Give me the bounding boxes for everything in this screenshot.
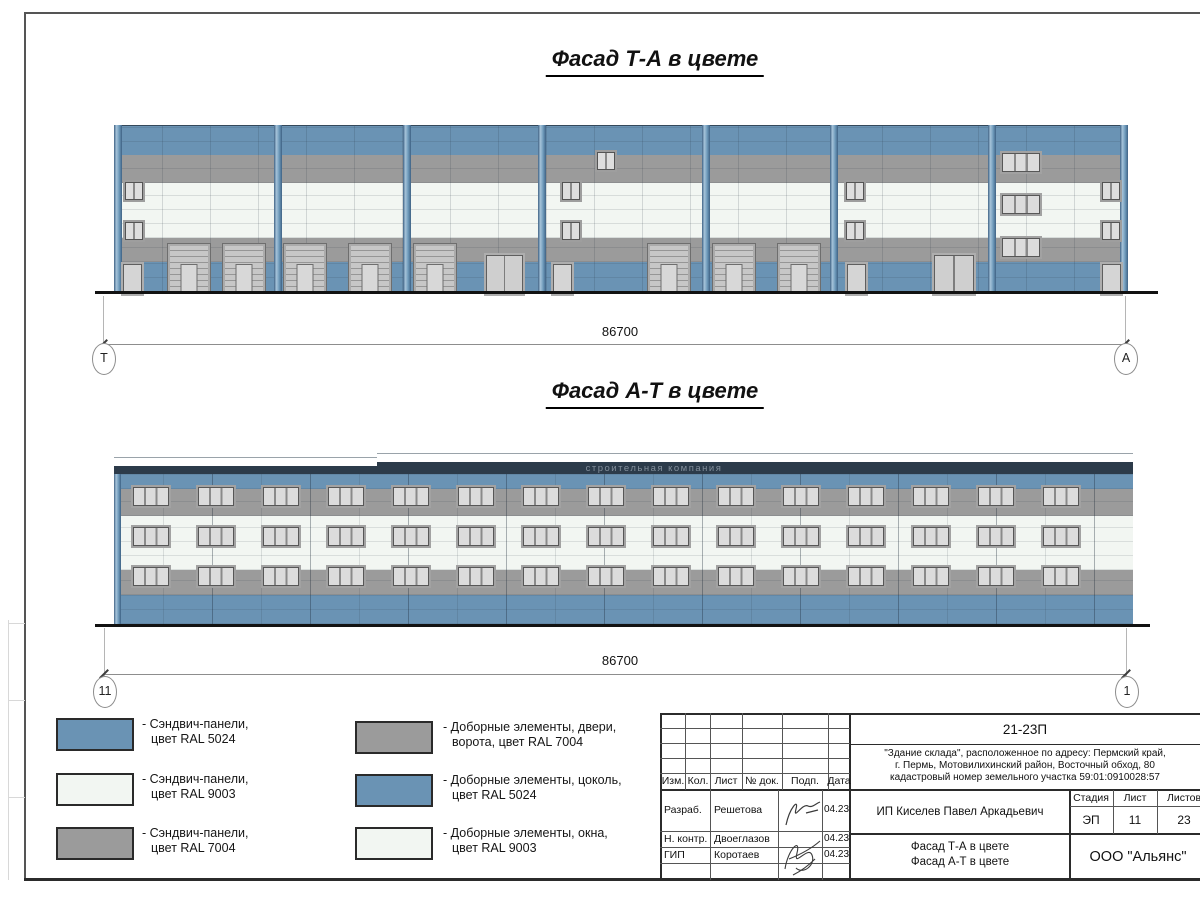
window — [263, 567, 299, 586]
legend-line: ворота, цвет RAL 7004 — [443, 735, 616, 750]
window — [913, 567, 949, 586]
window — [125, 222, 143, 240]
sheets-label: Листов — [1167, 792, 1200, 804]
doc-number: 21-23П — [1003, 722, 1047, 737]
stage-value: ЭП — [1082, 813, 1099, 827]
column-pilaster — [702, 125, 710, 292]
stamp-border — [660, 713, 1200, 715]
window — [198, 487, 234, 506]
sectional-gate — [222, 243, 266, 294]
dimension-value: 86700 — [602, 324, 638, 339]
window — [653, 567, 689, 586]
stamp-line — [782, 713, 783, 790]
legend-swatch — [355, 721, 433, 754]
role-name: Двоеглазов — [714, 833, 770, 845]
rev-header-data: Дата — [827, 775, 850, 787]
window — [458, 527, 494, 546]
client-name: ИП Киселев Павел Аркадьевич — [877, 806, 1044, 818]
legend-label: - Сэндвич-панели,цвет RAL 5024 — [142, 717, 248, 747]
gate-inset-door — [427, 264, 444, 292]
window — [1102, 182, 1120, 200]
window — [913, 487, 949, 506]
window — [718, 487, 754, 506]
axis-marker-a: А — [1114, 343, 1138, 375]
legend-label: - Доборные элементы, окна,цвет RAL 9003 — [443, 826, 608, 856]
stamp-line — [710, 713, 711, 880]
window — [913, 527, 949, 546]
extension-line — [104, 628, 105, 676]
facade-at-title: Фасад А-Т в цвете — [546, 378, 764, 409]
window — [198, 567, 234, 586]
sheet-name-line2: Фасад А-Т в цвете — [911, 856, 1009, 868]
stamp-line — [660, 758, 850, 759]
window — [783, 487, 819, 506]
legend-line: - Доборные элементы, окна, — [443, 826, 608, 840]
sectional-gate — [348, 243, 392, 294]
stamp-border — [660, 789, 1200, 791]
window — [848, 567, 884, 586]
sheet-label: Лист — [1124, 792, 1147, 804]
frame-left — [24, 12, 26, 881]
rev-header-kol: Кол. — [688, 775, 709, 787]
facade-ta-title: Фасад Т-А в цвете — [546, 46, 764, 77]
window — [783, 527, 819, 546]
sectional-gate — [712, 243, 756, 294]
margin-mark — [8, 623, 25, 624]
signature — [779, 831, 823, 877]
window — [1102, 222, 1120, 240]
window — [562, 182, 580, 200]
window — [597, 152, 615, 170]
dimension-line — [104, 674, 1126, 675]
window — [458, 567, 494, 586]
legend-label: - Доборные элементы, двери,ворота, цвет … — [443, 720, 616, 750]
column-pilaster — [114, 125, 122, 292]
column-pilaster — [274, 125, 282, 292]
role-label: Разраб. — [664, 804, 702, 816]
role-date: 04.23 — [824, 849, 849, 860]
role-label: ГИП — [664, 849, 685, 861]
gate-inset-door — [791, 264, 808, 292]
entrance-door — [123, 264, 142, 294]
window — [1043, 567, 1079, 586]
window — [783, 567, 819, 586]
project-address-line1: "Здание склада", расположенное по адресу… — [884, 748, 1166, 759]
window — [523, 567, 559, 586]
extension-line — [103, 296, 104, 344]
entrance-door — [1102, 264, 1121, 294]
window — [133, 567, 169, 586]
window — [1043, 487, 1079, 506]
sheet-name-line1: Фасад Т-А в цвете — [911, 841, 1009, 853]
rev-header-doc: № док. — [745, 775, 779, 787]
legend-swatch — [56, 718, 134, 751]
column-pilaster — [988, 125, 996, 292]
window — [523, 527, 559, 546]
stamp-line — [1113, 790, 1114, 834]
rev-header-izm: Изм. — [662, 775, 685, 787]
window — [1002, 195, 1040, 214]
window — [133, 487, 169, 506]
legend-line: цвет RAL 5024 — [142, 732, 248, 747]
sectional-gate — [647, 243, 691, 294]
drawing-sheet: Фасад Т-А в цвете 86700 Т А Фасад А-Т в … — [0, 0, 1200, 900]
window — [846, 182, 864, 200]
window — [978, 567, 1014, 586]
stamp-line — [660, 743, 850, 744]
stamp-line — [660, 728, 850, 729]
axis-marker-11: 11 — [93, 676, 117, 708]
stamp-border — [660, 713, 662, 880]
role-name: Решетова — [714, 804, 762, 816]
gate-inset-door — [236, 264, 253, 292]
sectional-gate — [167, 243, 211, 294]
column-pilaster — [114, 474, 121, 624]
window — [263, 527, 299, 546]
sheet-value: 11 — [1129, 813, 1141, 827]
window — [198, 527, 234, 546]
entrance-door — [553, 264, 572, 294]
legend-swatch — [56, 773, 134, 806]
gate-inset-door — [726, 264, 743, 292]
window — [523, 487, 559, 506]
stamp-border — [850, 833, 1200, 835]
window — [588, 487, 624, 506]
legend-line: цвет RAL 5024 — [443, 788, 622, 803]
legend-label: - Сэндвич-панели,цвет RAL 9003 — [142, 772, 248, 802]
sectional-gate — [777, 243, 821, 294]
window — [848, 487, 884, 506]
sectional-gate — [413, 243, 457, 294]
window — [718, 527, 754, 546]
column-pilaster — [830, 125, 838, 292]
legend-line: - Доборные элементы, цоколь, — [443, 773, 622, 787]
window — [846, 222, 864, 240]
facade-ta-drawing — [114, 125, 1128, 292]
gate-inset-door — [181, 264, 198, 292]
stamp-border — [850, 744, 1200, 745]
ground-line — [95, 291, 1158, 294]
legend-label: - Сэндвич-панели,цвет RAL 7004 — [142, 826, 248, 856]
window — [1043, 527, 1079, 546]
gate-inset-door — [362, 264, 379, 292]
window — [978, 527, 1014, 546]
facade-ta-elements — [114, 125, 1128, 292]
window — [978, 487, 1014, 506]
legend-line: - Сэндвич-панели, — [142, 772, 248, 786]
window — [653, 527, 689, 546]
legend-swatch — [355, 774, 433, 807]
legend-line: цвет RAL 9003 — [142, 787, 248, 802]
role-label: Н. контр. — [664, 833, 707, 845]
window — [393, 527, 429, 546]
window — [1002, 153, 1040, 172]
stamp-line — [685, 713, 686, 790]
axis-marker-t: Т — [92, 343, 116, 375]
project-address-line2: г. Пермь, Мотовилихинский район, Восточн… — [895, 760, 1155, 771]
frame-top — [24, 12, 1200, 14]
watermark-text: строительная компания — [494, 463, 814, 474]
stamp-line — [660, 773, 850, 774]
window — [328, 567, 364, 586]
window — [133, 527, 169, 546]
legend-line: - Доборные элементы, двери, — [443, 720, 616, 734]
stamp-line — [1157, 790, 1158, 834]
stamp-border — [849, 713, 851, 880]
margin-mark — [8, 700, 25, 701]
window — [653, 487, 689, 506]
rev-header-list: Лист — [715, 775, 738, 787]
legend-line: цвет RAL 9003 — [443, 841, 608, 856]
legend-swatch — [56, 827, 134, 860]
facade-at-drawing: строительная компания — [114, 453, 1133, 625]
gate-inset-door — [661, 264, 678, 292]
extension-line — [1126, 628, 1127, 676]
window — [562, 222, 580, 240]
window — [393, 487, 429, 506]
stamp-line — [742, 713, 743, 790]
window — [393, 567, 429, 586]
facade-at-elements — [114, 453, 1133, 625]
stage-label: Стадия — [1073, 792, 1109, 804]
margin-mark — [8, 620, 9, 880]
window — [588, 567, 624, 586]
project-address-line3: кадастровый номер земельного участка 59:… — [890, 772, 1160, 783]
extension-line — [1125, 296, 1126, 344]
legend-swatch — [355, 827, 433, 860]
legend-label: - Доборные элементы, цоколь,цвет RAL 502… — [443, 773, 622, 803]
sheets-value: 23 — [1177, 813, 1190, 827]
window — [588, 527, 624, 546]
role-name: Коротаев — [714, 849, 759, 861]
window — [848, 527, 884, 546]
double-door — [934, 255, 974, 294]
ground-line — [95, 624, 1150, 627]
legend-line: - Сэндвич-панели, — [142, 826, 248, 840]
window — [1002, 238, 1040, 257]
column-pilaster — [538, 125, 546, 292]
frame-bottom — [24, 878, 1200, 881]
rev-header-podp: Подп. — [791, 775, 819, 787]
column-pilaster — [403, 125, 411, 292]
window — [328, 527, 364, 546]
axis-marker-1: 1 — [1115, 676, 1139, 708]
signature — [780, 793, 822, 831]
dimension-line — [103, 344, 1125, 345]
gate-inset-door — [297, 264, 314, 292]
window — [328, 487, 364, 506]
legend-line: цвет RAL 7004 — [142, 841, 248, 856]
role-date: 04.23 — [824, 833, 849, 844]
stamp-line — [1070, 806, 1200, 807]
margin-mark — [8, 797, 25, 798]
legend-line: - Сэндвич-панели, — [142, 717, 248, 731]
window — [718, 567, 754, 586]
window — [263, 487, 299, 506]
stamp-border — [1069, 790, 1071, 880]
window — [125, 182, 143, 200]
sectional-gate — [283, 243, 327, 294]
column-pilaster — [1120, 125, 1128, 292]
double-door — [486, 255, 523, 294]
parapet-band — [114, 466, 377, 474]
window — [458, 487, 494, 506]
dimension-value: 86700 — [602, 653, 638, 668]
role-date: 04.23 — [824, 804, 849, 815]
organization-name: ООО "Альянс" — [1090, 849, 1187, 865]
entrance-door — [847, 264, 866, 294]
